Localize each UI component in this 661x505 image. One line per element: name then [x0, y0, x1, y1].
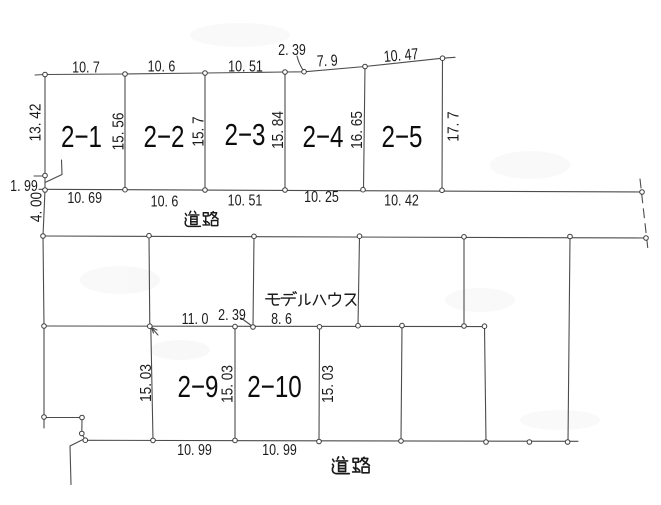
svg-text:10. 7: 10. 7	[72, 59, 100, 77]
svg-text:15. 03: 15. 03	[320, 365, 337, 403]
svg-text:10. 47: 10. 47	[383, 46, 419, 67]
svg-text:2−1: 2−1	[61, 119, 102, 154]
svg-text:11. 0: 11. 0	[182, 311, 209, 329]
svg-text:2. 39: 2. 39	[278, 42, 306, 60]
svg-text:2−3: 2−3	[224, 117, 265, 152]
svg-text:17. 7: 17. 7	[446, 111, 463, 141]
svg-text:2−2: 2−2	[143, 119, 184, 154]
svg-text:16. 65: 16. 65	[349, 111, 366, 149]
svg-text:2−10: 2−10	[247, 369, 301, 404]
svg-text:7. 9: 7. 9	[316, 52, 338, 71]
svg-text:10. 25: 10. 25	[304, 189, 339, 207]
svg-text:13. 42: 13. 42	[28, 104, 45, 142]
svg-text:2−5: 2−5	[381, 119, 422, 154]
svg-text:10. 99: 10. 99	[177, 442, 212, 460]
svg-text:10. 51: 10. 51	[228, 192, 263, 210]
svg-text:2−4: 2−4	[302, 119, 343, 154]
svg-text:15. 84: 15. 84	[270, 111, 287, 149]
svg-text:15. 56: 15. 56	[111, 113, 128, 151]
svg-text:10. 51: 10. 51	[228, 58, 263, 76]
svg-text:15. 7: 15. 7	[191, 116, 208, 146]
svg-text:10. 69: 10. 69	[67, 190, 102, 208]
svg-text:10. 99: 10. 99	[262, 442, 297, 460]
svg-text:10. 42: 10. 42	[384, 192, 419, 210]
svg-text:15. 03: 15. 03	[220, 365, 237, 403]
svg-text:10. 6: 10. 6	[151, 193, 179, 211]
svg-text:15. 03: 15. 03	[138, 364, 155, 402]
svg-text:2. 39: 2. 39	[218, 307, 246, 325]
svg-text:10. 6: 10. 6	[148, 58, 176, 76]
svg-text:8. 6: 8. 6	[271, 311, 292, 329]
svg-text:2−9: 2−9	[177, 369, 218, 404]
svg-text:4. 00: 4. 00	[29, 192, 46, 222]
